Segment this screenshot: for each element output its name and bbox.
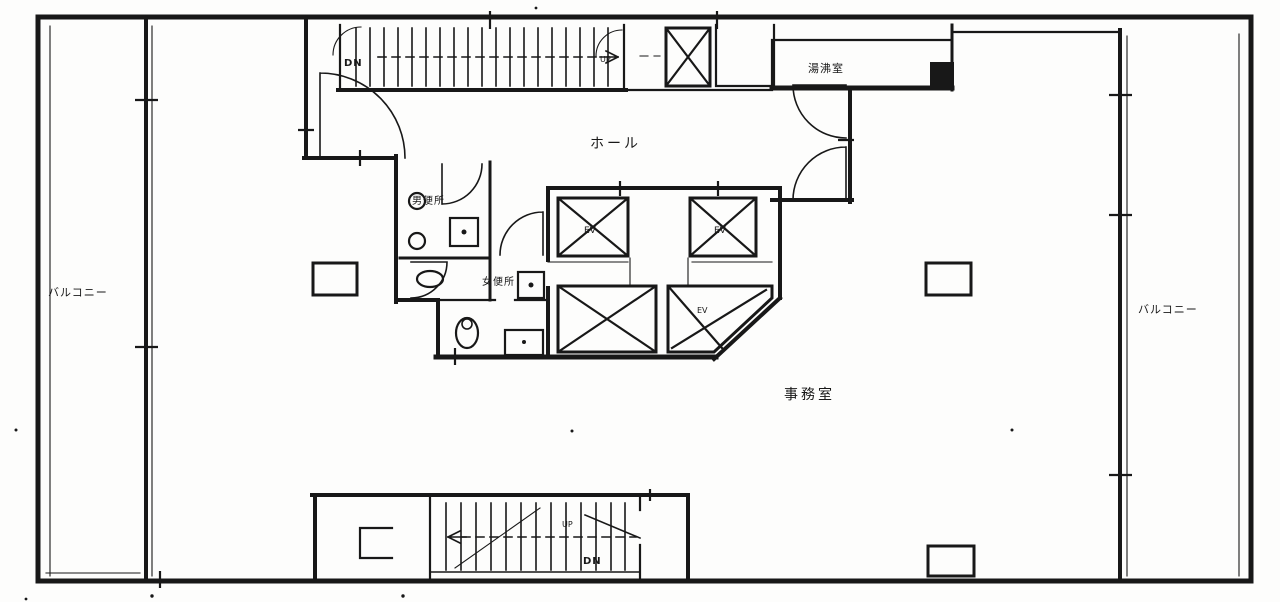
stair-top: DN UP [333, 25, 626, 90]
kitchenette-counter [930, 62, 954, 88]
stair-top-dn-label: DN [344, 58, 363, 69]
door-womens-toilet [500, 212, 543, 255]
balcony-right: バルコニー [952, 30, 1198, 580]
balcony-left: バルコニー [48, 18, 158, 580]
door-mens-toilet [442, 164, 482, 204]
womens-toilet-label: 女便所 [482, 275, 515, 288]
kitchenette-label: 湯沸室 [808, 61, 844, 75]
stair-bottom-up-label: UP [562, 520, 573, 529]
elevator-label: EV [714, 226, 727, 236]
office-label: 事務室 [784, 386, 835, 403]
elevator-label: EV [584, 226, 597, 236]
scan-noise [15, 7, 1014, 601]
office-area: 事務室 [313, 263, 974, 576]
stair-direction-arrow [448, 531, 466, 543]
elevator-hall: EV EV EV [548, 181, 780, 359]
outer-walls [38, 11, 1251, 588]
door-hall-southwest [320, 73, 405, 158]
elevator-shaft-2: EV [690, 198, 756, 256]
column [928, 546, 974, 576]
toilet-bowl-fixture [456, 318, 478, 348]
service-shaft [624, 25, 774, 90]
column [313, 263, 357, 295]
stair-room-fixture [360, 528, 392, 558]
urinal-fixture [409, 233, 425, 249]
mens-toilet: 男便所 [400, 162, 490, 300]
hall-label: ホール [590, 136, 641, 152]
floor-plan-sheet: バルコニー バルコニー ホール DN [0, 0, 1280, 602]
toilet-lobby [411, 262, 447, 298]
floor-plan-drawing: バルコニー バルコニー ホール DN [0, 0, 1280, 602]
column [926, 263, 971, 295]
balcony-right-label: バルコニー [1138, 303, 1198, 316]
mens-toilet-label: 男便所 [412, 194, 445, 207]
elevator-shaft-1: EV [558, 198, 628, 256]
service-toilet-room [437, 300, 548, 355]
door-hall-east-lower [793, 147, 846, 200]
elevator-shaft-3 [558, 286, 656, 352]
stair-bottom: UP DN [312, 489, 688, 578]
elevator-label: EV [697, 306, 708, 315]
door-stair-bottom [585, 515, 640, 538]
kitchenette: 湯沸室 [772, 25, 954, 90]
door-hall-east-upper [793, 85, 846, 138]
balcony-left-label: バルコニー [48, 286, 108, 299]
stair-top-up-label: UP [600, 55, 611, 64]
stair-bottom-dn-label: DN [583, 556, 602, 567]
